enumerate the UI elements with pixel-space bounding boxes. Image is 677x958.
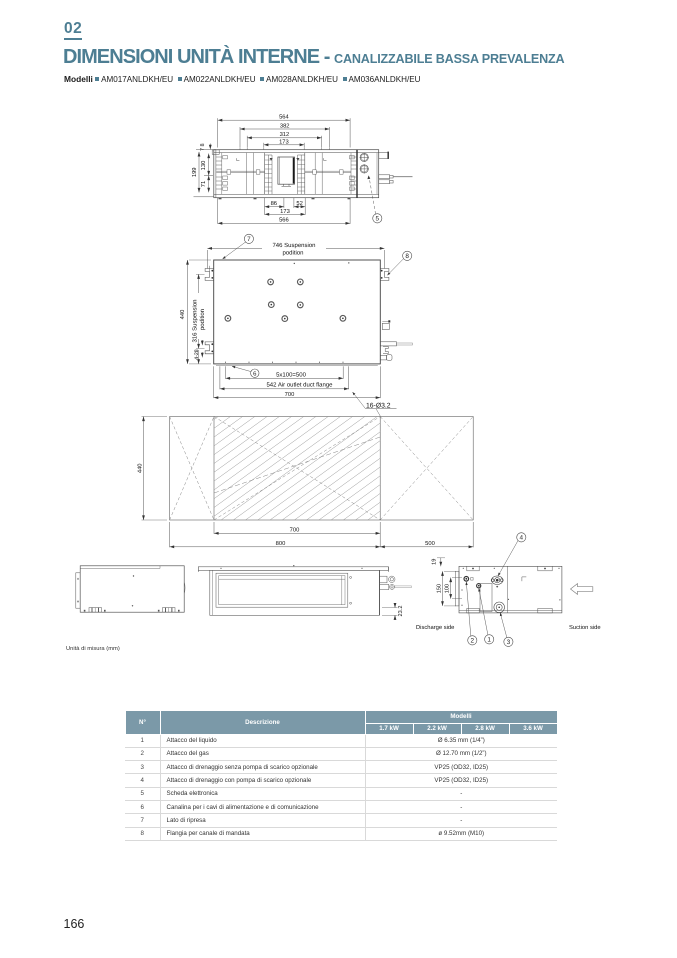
- svg-text:Discharge side: Discharge side: [416, 624, 454, 631]
- svg-text:700: 700: [290, 527, 300, 534]
- svg-text:71: 71: [201, 181, 207, 187]
- svg-text:440: 440: [179, 310, 186, 320]
- svg-text:173: 173: [279, 138, 289, 145]
- svg-text:382: 382: [280, 122, 290, 129]
- svg-text:86: 86: [271, 200, 277, 207]
- svg-text:4-28: 4-28: [194, 349, 200, 359]
- svg-text:800: 800: [276, 540, 286, 547]
- svg-text:16-Ø3.2: 16-Ø3.2: [366, 402, 391, 409]
- svg-text:130: 130: [200, 161, 207, 171]
- svg-text:173: 173: [280, 208, 290, 215]
- svg-text:19: 19: [431, 559, 437, 565]
- svg-text:564: 564: [279, 114, 289, 121]
- svg-text:podition: podition: [282, 250, 303, 257]
- svg-text:Suction side: Suction side: [569, 624, 601, 631]
- svg-text:8: 8: [405, 253, 409, 260]
- svg-text:5: 5: [376, 216, 380, 223]
- svg-text:6: 6: [253, 370, 257, 377]
- svg-text:199: 199: [191, 167, 198, 177]
- svg-text:312: 312: [280, 131, 290, 138]
- svg-text:746 Suspension: 746 Suspension: [272, 242, 315, 249]
- svg-text:7: 7: [247, 236, 251, 243]
- svg-text:2: 2: [471, 638, 475, 645]
- svg-text:52: 52: [296, 200, 302, 207]
- svg-text:5x100=500: 5x100=500: [276, 371, 307, 378]
- svg-text:542 Air outlet duct flange: 542 Air outlet duct flange: [266, 382, 333, 389]
- svg-text:podition: podition: [199, 309, 206, 330]
- svg-text:566: 566: [279, 217, 289, 224]
- svg-text:3: 3: [507, 639, 511, 646]
- svg-text:4: 4: [520, 535, 524, 542]
- svg-text:440: 440: [136, 463, 143, 473]
- svg-text:500: 500: [425, 540, 435, 547]
- svg-text:7 8: 7 8: [200, 143, 206, 151]
- svg-text:700: 700: [285, 391, 295, 398]
- svg-text:100: 100: [445, 584, 451, 593]
- svg-text:1: 1: [487, 637, 491, 644]
- svg-text:150: 150: [436, 584, 442, 593]
- svg-text:316 Suspension: 316 Suspension: [191, 299, 198, 342]
- svg-text:23.2: 23.2: [398, 606, 404, 617]
